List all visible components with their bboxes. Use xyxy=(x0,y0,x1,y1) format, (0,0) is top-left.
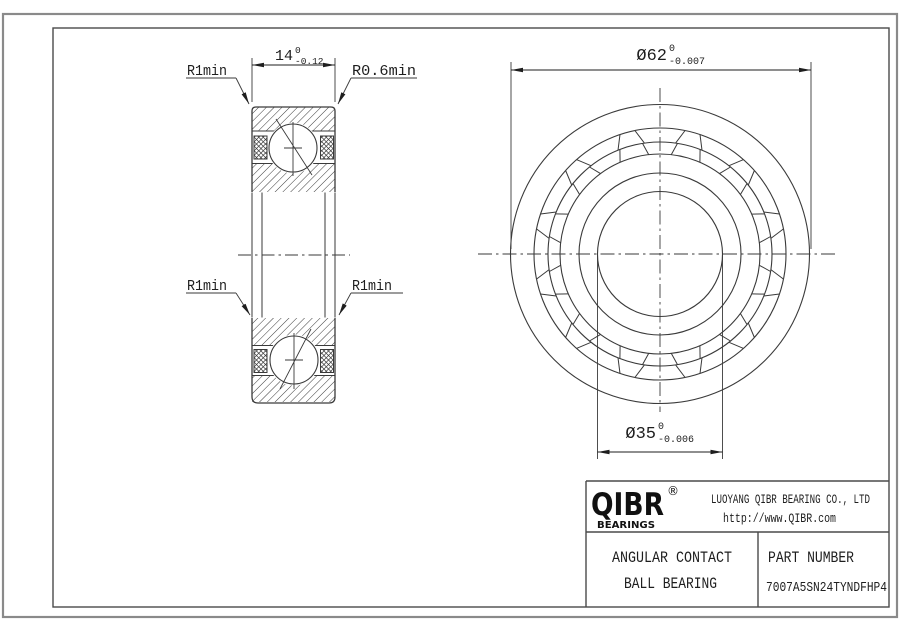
od-dim-tol-lower: -0.007 xyxy=(669,57,705,68)
product-name-line1: ANGULAR CONTACT xyxy=(612,549,732,567)
technical-drawing: 14 0 -0.12 R1min R0.6min R1min R1min xyxy=(0,0,900,636)
company-website: http://www.QIBR.com xyxy=(723,511,836,526)
bore-dim-tol-lower: -0.006 xyxy=(658,435,694,446)
radius-label-top-left: R1min xyxy=(187,63,227,80)
front-view: Ø62 0 -0.007 Ø35 0 -0.006 xyxy=(478,44,838,459)
logo-wordmark: QIBR xyxy=(591,487,664,523)
drawing-page: 14 0 -0.12 R1min R0.6min R1min R1min xyxy=(0,0,900,636)
logo-subtitle: BEARINGS xyxy=(597,520,655,531)
company-logo: QIBR ® BEARINGS xyxy=(591,484,679,531)
width-dim-tol-lower: -0.12 xyxy=(295,56,324,67)
radius-label-top-right: R0.6min xyxy=(352,63,416,80)
section-view: 14 0 -0.12 R1min R0.6min R1min R1min xyxy=(186,45,417,403)
od-dim-value: Ø62 xyxy=(636,47,667,66)
company-name: LUOYANG QIBR BEARING CO., LTD xyxy=(711,492,870,507)
registered-trademark-icon: ® xyxy=(667,484,679,498)
product-name-line2: BALL BEARING xyxy=(624,575,717,593)
cage-left-top xyxy=(254,136,267,159)
width-dim-value: 14 xyxy=(275,48,293,65)
part-number-label: PART NUMBER xyxy=(768,549,854,567)
section-top-half xyxy=(252,107,335,192)
od-dim-tol-upper: 0 xyxy=(669,44,675,55)
cage-right-bottom xyxy=(321,350,334,373)
radius-label-bottom-right: R1min xyxy=(352,278,392,295)
part-number-value: 7007A5SN24TYNDFHP4 xyxy=(766,580,887,596)
drawing-frame xyxy=(3,14,897,617)
radius-label-bottom-left: R1min xyxy=(187,278,227,295)
bore-dim-tol-upper: 0 xyxy=(658,422,664,433)
cage-left-bottom xyxy=(254,350,267,373)
width-dimension: 14 0 -0.12 xyxy=(252,45,335,102)
section-bottom-half xyxy=(252,318,335,403)
cage-right-top xyxy=(321,136,334,159)
width-dim-tol-upper: 0 xyxy=(295,45,301,56)
title-block: QIBR ® BEARINGS LUOYANG QIBR BEARING CO.… xyxy=(586,481,889,607)
bore-dim-value: Ø35 xyxy=(625,425,656,444)
